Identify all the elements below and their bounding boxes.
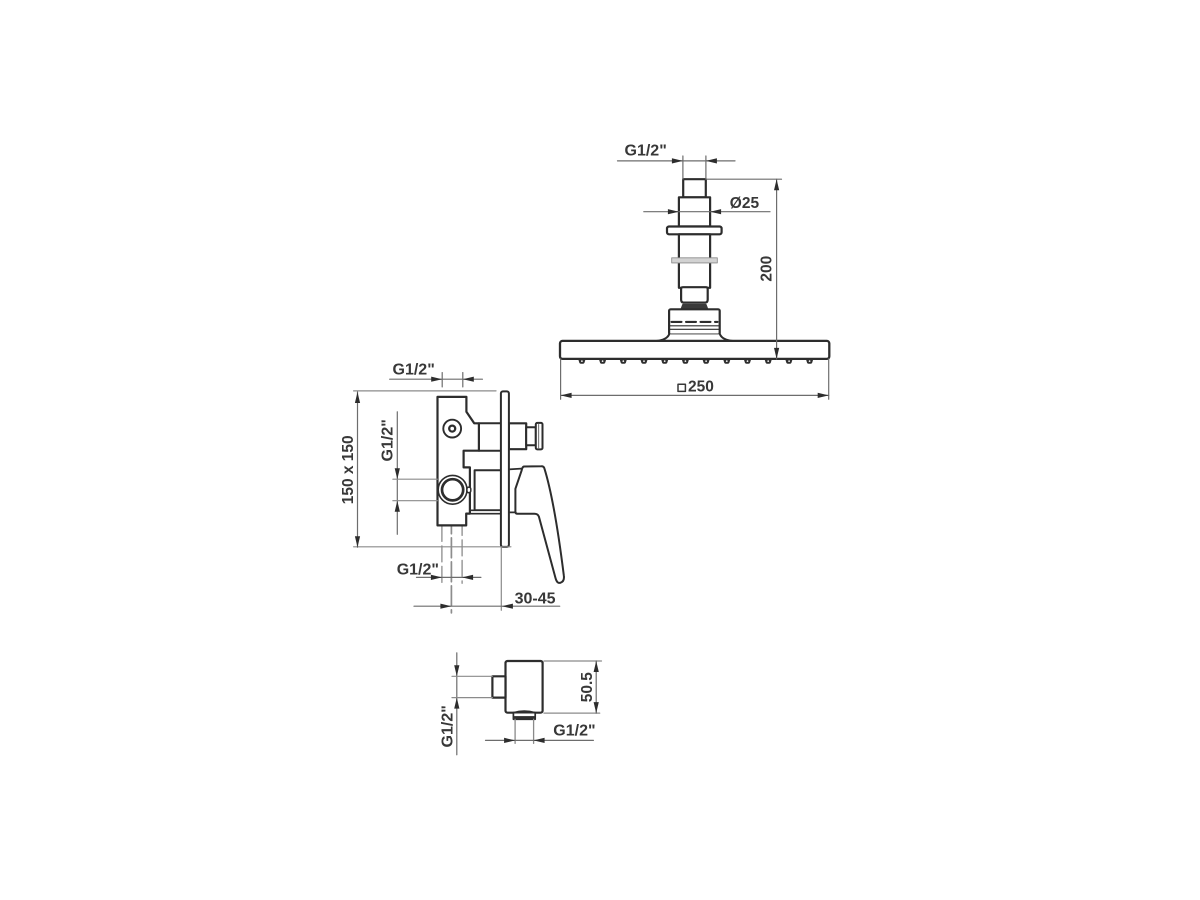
svg-text:30-45: 30-45 [515, 590, 556, 607]
svg-text:G1/2": G1/2" [393, 362, 435, 379]
svg-text:250: 250 [688, 379, 714, 396]
svg-text:G1/2": G1/2" [380, 419, 397, 461]
svg-text:G1/2": G1/2" [625, 142, 667, 159]
svg-text:G1/2": G1/2" [439, 705, 456, 747]
svg-text:50.5: 50.5 [579, 672, 596, 703]
svg-text:150 x 150: 150 x 150 [340, 435, 357, 504]
svg-text:Ø25: Ø25 [730, 195, 760, 212]
svg-text:200: 200 [759, 256, 776, 282]
svg-text:G1/2": G1/2" [553, 723, 595, 740]
